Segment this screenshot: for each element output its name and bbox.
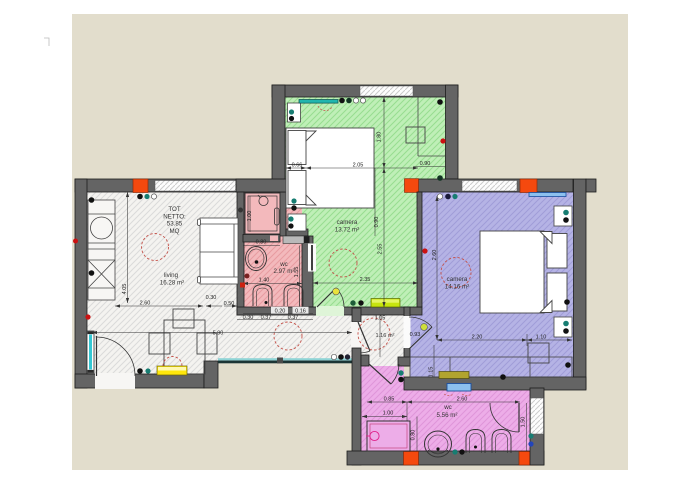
svg-text:0.30: 0.30 — [243, 315, 254, 321]
svg-text:0.16: 0.16 — [295, 308, 306, 314]
svg-text:0.85: 0.85 — [384, 397, 395, 403]
svg-text:0.93: 0.93 — [410, 332, 421, 338]
svg-text:TOT: TOT — [168, 206, 180, 213]
svg-text:1.15: 1.15 — [429, 367, 435, 378]
svg-text:camera: camera — [447, 276, 468, 283]
svg-text:wc: wc — [279, 261, 288, 268]
svg-text:0.37: 0.37 — [288, 315, 299, 321]
svg-text:1.05: 1.05 — [375, 316, 386, 322]
svg-text:2.20: 2.20 — [472, 335, 483, 341]
svg-text:2.60: 2.60 — [457, 397, 468, 403]
svg-text:MQ: MQ — [170, 228, 180, 235]
svg-text:camera: camera — [337, 219, 358, 226]
svg-text:2.60: 2.60 — [432, 250, 438, 261]
svg-text:14.16 m²: 14.16 m² — [445, 284, 469, 291]
svg-text:0.50: 0.50 — [224, 301, 235, 307]
svg-text:2.97 m²: 2.97 m² — [274, 268, 295, 275]
svg-text:0.90: 0.90 — [374, 217, 380, 228]
svg-text:2.35: 2.35 — [360, 277, 371, 283]
svg-text:5.90: 5.90 — [213, 331, 224, 337]
svg-text:0.20: 0.20 — [275, 308, 286, 314]
svg-text:5.56 m²: 5.56 m² — [437, 412, 458, 419]
svg-text:0.30: 0.30 — [206, 295, 217, 301]
svg-text:53.85: 53.85 — [167, 221, 183, 228]
svg-text:0.37: 0.37 — [261, 315, 272, 321]
svg-text:wc: wc — [443, 404, 452, 411]
svg-text:1.16 m²: 1.16 m² — [376, 333, 395, 339]
svg-text:16.28 m²: 16.28 m² — [160, 279, 184, 286]
svg-text:0.80: 0.80 — [256, 240, 267, 246]
svg-text:2.60: 2.60 — [140, 301, 151, 307]
svg-text:NETTO:: NETTO: — [163, 213, 186, 220]
svg-text:1.00: 1.00 — [247, 211, 253, 222]
svg-text:2.55: 2.55 — [378, 244, 384, 255]
svg-text:1.55: 1.55 — [294, 267, 300, 278]
svg-text:0.66: 0.66 — [292, 163, 303, 169]
svg-text:1.40: 1.40 — [259, 278, 270, 284]
svg-text:1.50: 1.50 — [521, 417, 527, 428]
svg-text:0.90: 0.90 — [420, 161, 431, 167]
svg-text:1.80: 1.80 — [377, 132, 383, 143]
svg-text:0.80: 0.80 — [411, 430, 417, 441]
svg-text:4.05: 4.05 — [122, 284, 128, 295]
svg-text:1.00: 1.00 — [383, 411, 394, 417]
svg-text:living: living — [164, 272, 179, 279]
svg-text:13.72 m²: 13.72 m² — [335, 227, 359, 234]
svg-text:2.05: 2.05 — [353, 163, 364, 169]
svg-text:1.10: 1.10 — [536, 335, 547, 341]
